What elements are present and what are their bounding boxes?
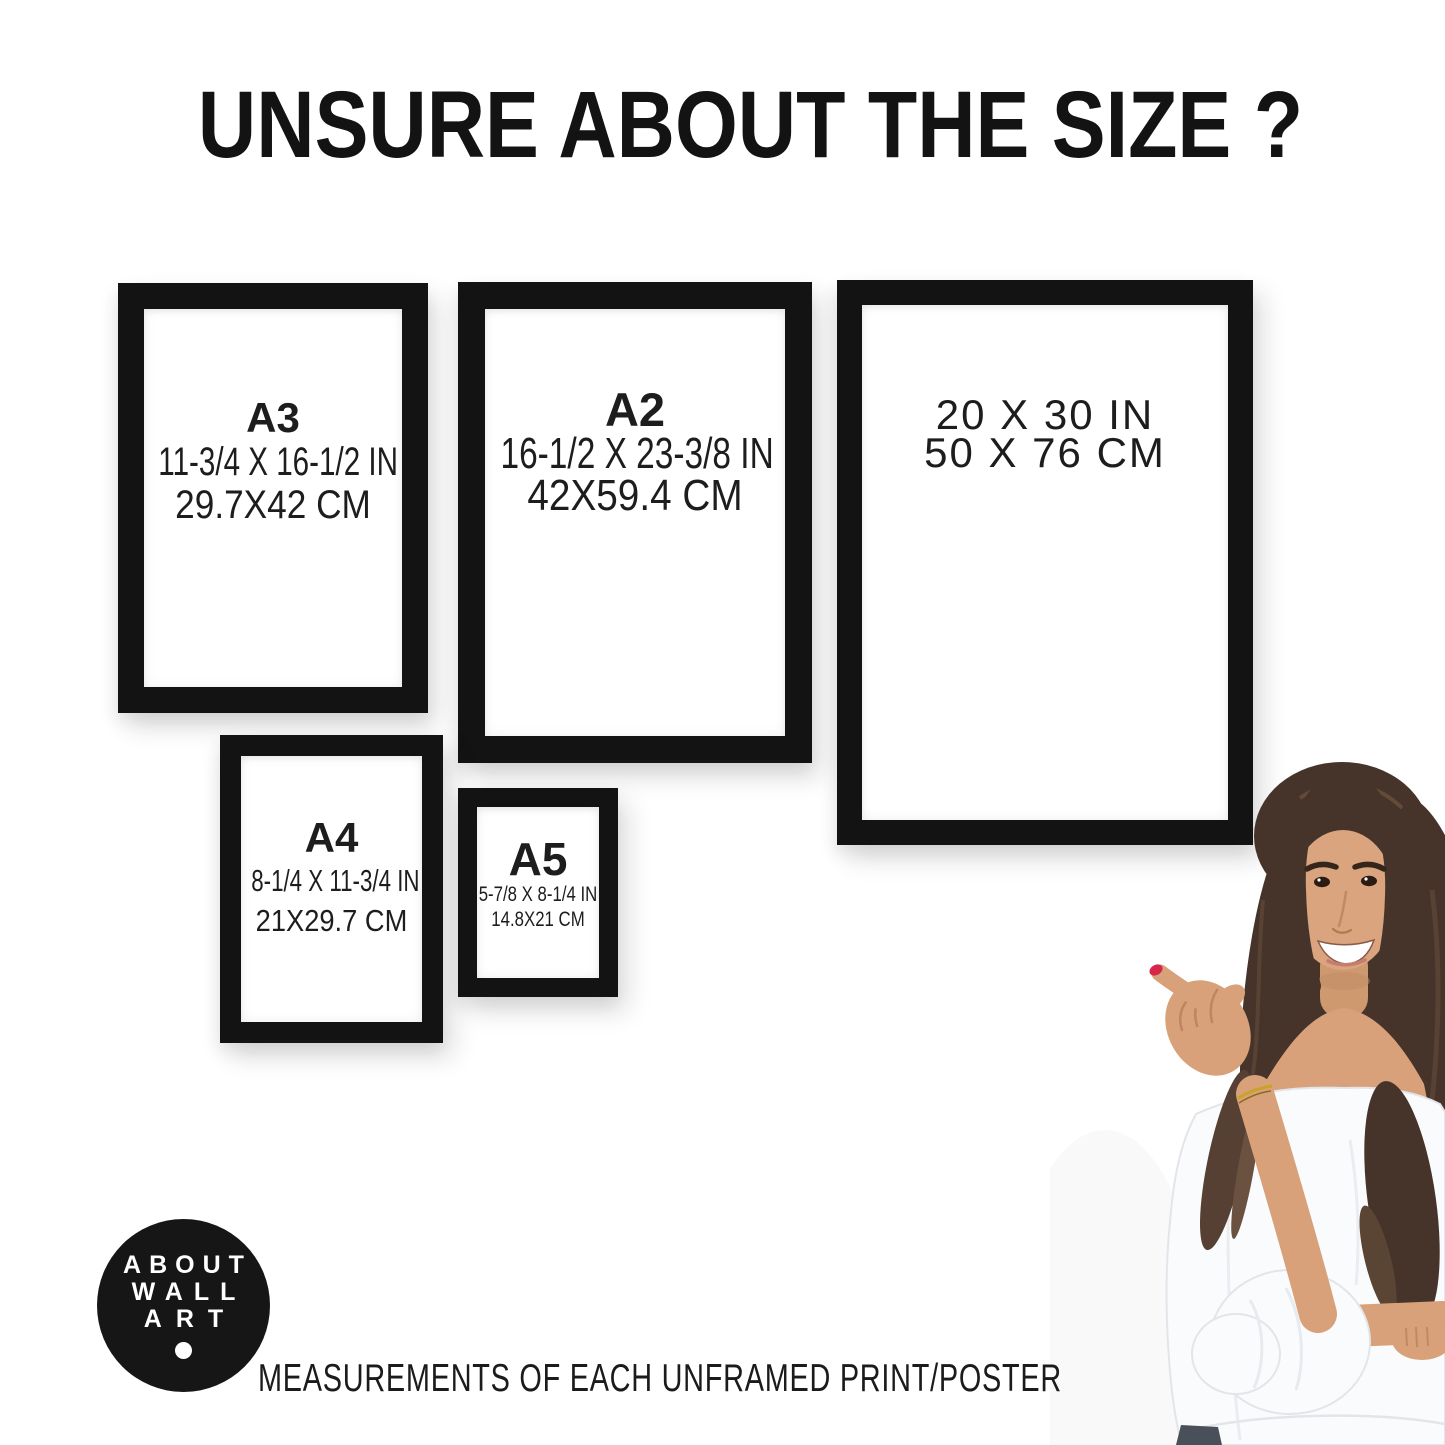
logo-line-2: WALL <box>121 1279 247 1306</box>
size-label: A3 <box>118 396 428 440</box>
size-inches: 16-1/2 X 23-3/8 IN <box>500 432 769 476</box>
size-frame-a5: A5 5-7/8 X 8-1/4 IN 14.8X21 CM <box>458 788 618 997</box>
frame-a4-text: A4 8-1/4 X 11-3/4 IN 21X29.7 CM <box>220 815 443 941</box>
size-cm: 29.7X42 CM <box>137 484 410 527</box>
pointing-finger <box>1160 973 1200 1001</box>
size-inches: 5-7/8 X 8-1/4 IN <box>474 882 602 907</box>
frame-a2-text: A2 16-1/2 X 23-3/8 IN 42X59.4 CM <box>458 388 812 516</box>
frame-a2-mat <box>485 309 785 736</box>
size-cm: 50 X 76 CM <box>837 434 1253 472</box>
logo-line-1: ABOUT <box>115 1252 252 1279</box>
logo-dot-icon <box>175 1342 192 1359</box>
page-title: UNSURE ABOUT THE SIZE ? <box>136 78 1364 173</box>
size-cm: 42X59.4 CM <box>479 476 791 516</box>
size-cm: 21X29.7 CM <box>233 901 429 941</box>
eye-left <box>1314 877 1330 887</box>
frame-a5-text: A5 5-7/8 X 8-1/4 IN 14.8X21 CM <box>458 836 618 932</box>
size-inches: 11-3/4 X 16-1/2 IN <box>158 440 387 484</box>
eye-right <box>1361 876 1377 886</box>
caption: MEASUREMENTS OF EACH UNFRAMED PRINT/POST… <box>172 1358 1149 1400</box>
size-label: A5 <box>458 836 618 882</box>
size-frame-a3: A3 11-3/4 X 16-1/2 IN 29.7X42 CM <box>118 283 428 713</box>
logo-line-3: ART <box>130 1306 237 1333</box>
size-inches: 8-1/4 X 11-3/4 IN <box>251 861 412 901</box>
size-cm: 14.8X21 CM <box>474 907 602 932</box>
size-label: A4 <box>220 815 443 861</box>
jeans <box>1176 1425 1222 1445</box>
frame-20x30-text: 20 X 30 IN 50 X 76 CM <box>837 396 1253 472</box>
size-frame-a2: A2 16-1/2 X 23-3/8 IN 42X59.4 CM <box>458 282 812 763</box>
size-guide-page: UNSURE ABOUT THE SIZE ? A3 11-3/4 X 16-1… <box>0 0 1445 1445</box>
size-label: A2 <box>458 388 812 432</box>
size-frame-a4: A4 8-1/4 X 11-3/4 IN 21X29.7 CM <box>220 735 443 1043</box>
woman-pointing-photo <box>1050 740 1445 1445</box>
frame-a3-text: A3 11-3/4 X 16-1/2 IN 29.7X42 CM <box>118 396 428 527</box>
